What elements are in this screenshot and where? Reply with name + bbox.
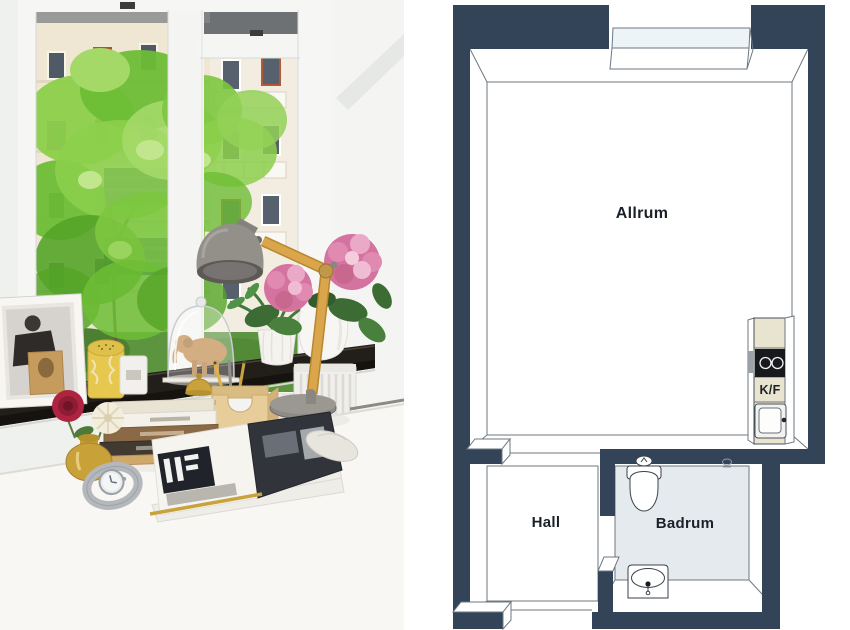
room-label-allrum: Allrum bbox=[616, 205, 668, 222]
kitchen-sink bbox=[755, 404, 786, 438]
magazine-masthead bbox=[157, 446, 215, 494]
window-bay bbox=[610, 28, 753, 69]
yellow-candle-jar bbox=[88, 340, 124, 398]
hall-floor bbox=[487, 466, 598, 601]
floor-plan: K/F Allrum Hall Badrum bbox=[404, 0, 850, 630]
white-candle-jar bbox=[120, 356, 147, 394]
framed-photo bbox=[0, 294, 87, 408]
room-label-badrum: Badrum bbox=[656, 515, 714, 532]
allrum-floor bbox=[487, 82, 792, 435]
red-flower bbox=[52, 390, 84, 422]
bathroom-sink bbox=[628, 565, 668, 598]
cooktop bbox=[755, 349, 785, 377]
oven-handle bbox=[748, 351, 753, 373]
white-flower bbox=[92, 402, 124, 434]
window-lock bbox=[250, 30, 263, 36]
listing-collage: K/F Allrum Hall Badrum bbox=[0, 0, 850, 630]
room-label-hall: Hall bbox=[532, 514, 561, 531]
kitchenette: K/F bbox=[748, 316, 794, 444]
fridge-freezer-label: K/F bbox=[759, 383, 780, 397]
window-lock bbox=[120, 2, 135, 9]
apartment-photo bbox=[0, 0, 404, 630]
